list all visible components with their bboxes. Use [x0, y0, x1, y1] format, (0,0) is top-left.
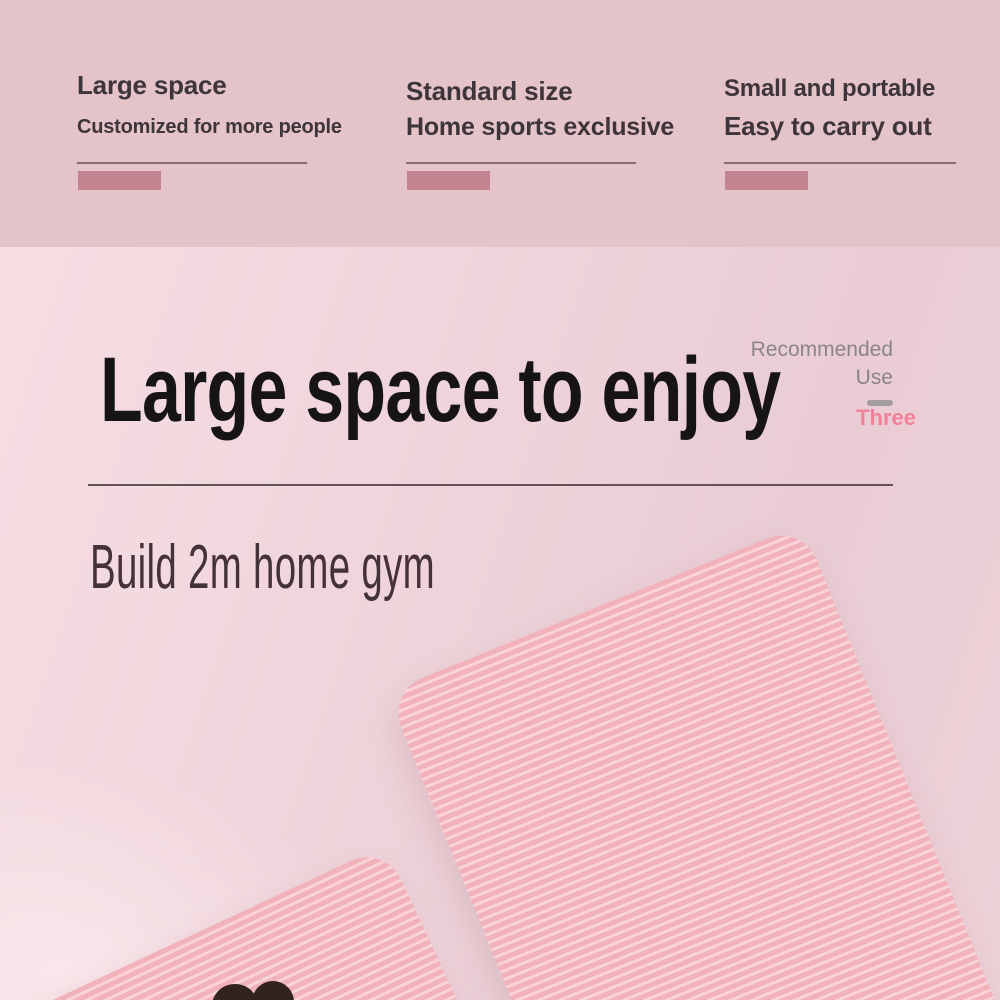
feature-swatch [78, 171, 161, 190]
feature-swatch [725, 171, 808, 190]
section-divider [88, 484, 893, 486]
recommended-count-badge: Three [856, 405, 916, 431]
feature-subtitle: Home sports exclusive [406, 115, 674, 140]
hero-heading: Large space to enjoy [100, 344, 780, 436]
feature-column-portable: Small and portable Easy to carry out [724, 0, 984, 247]
feature-underline [406, 162, 636, 164]
feature-subtitle: Easy to carry out [724, 113, 932, 139]
feature-strip: Large space Customized for more people S… [0, 0, 1000, 247]
feature-title: Standard size [406, 78, 572, 104]
feature-underline [77, 162, 307, 164]
feature-swatch [407, 171, 490, 190]
feature-underline [724, 162, 956, 164]
product-banner: Large space Customized for more people S… [0, 0, 1000, 1000]
feature-title: Small and portable [724, 77, 935, 101]
feature-title: Large space [77, 72, 227, 98]
feature-subtitle: Customized for more people [77, 117, 342, 137]
recommended-line2: Use [751, 364, 893, 392]
feature-column-standard-size: Standard size Home sports exclusive [406, 0, 686, 247]
hero-subheading: Build 2m home gym [90, 537, 435, 599]
recommended-use-label: Recommended Use [751, 336, 893, 391]
feature-column-large-space: Large space Customized for more people [77, 0, 357, 247]
recommended-line1: Recommended [751, 336, 893, 364]
